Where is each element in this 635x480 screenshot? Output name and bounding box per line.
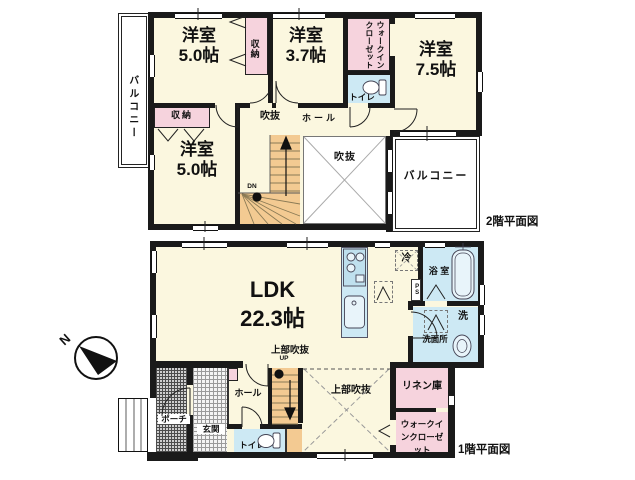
void-above-right-label: 上部吹抜	[316, 385, 386, 397]
wall-segment	[147, 452, 198, 461]
laundry-label: 洗	[452, 311, 474, 323]
fukinuke-hall-label: 吹抜	[250, 111, 290, 123]
ldk-label: LDK 22.3帖	[200, 276, 345, 333]
room-ne-label: 洋室 7.5帖	[396, 40, 476, 80]
room-n-label: 洋室 3.7帖	[268, 26, 344, 66]
wall-segment	[227, 424, 242, 429]
wall-segment	[298, 368, 303, 423]
floor2-stairs	[270, 135, 300, 193]
wall-segment	[148, 224, 392, 230]
window	[400, 131, 456, 137]
wall-segment	[368, 103, 392, 108]
floor1-stairs	[272, 368, 298, 429]
floor2-plan-label: 2階平面図	[486, 216, 556, 230]
wall-segment	[154, 103, 215, 108]
bathroom-label: 浴 室	[422, 266, 456, 277]
washer-space	[424, 310, 448, 333]
pipe-space-label: PS	[413, 281, 420, 299]
wall-segment	[408, 301, 413, 310]
closet-west-label: 収納	[158, 110, 206, 121]
genkan-step-line	[227, 368, 229, 424]
window	[479, 285, 485, 305]
wall-segment	[148, 12, 154, 230]
floor1-stairs-lower	[287, 429, 302, 452]
divider-line	[285, 429, 287, 452]
wall-segment	[390, 362, 455, 368]
wall-segment	[272, 103, 276, 108]
hall-1f-label: ホール	[230, 388, 266, 399]
window	[273, 13, 325, 19]
floor1-porch-floor	[156, 368, 187, 452]
cupboard-space	[374, 281, 393, 303]
walkin-closet-2f-label: ウォークインクローゼット	[352, 21, 386, 69]
wall-segment	[150, 361, 243, 368]
floor2-balcony-east	[392, 136, 480, 232]
wall-segment	[187, 368, 193, 385]
floor2-void	[303, 136, 386, 224]
compass-north-label: N	[53, 328, 77, 351]
floor1-genkan-floor	[193, 368, 227, 452]
room-nw-label: 洋室 5.0帖	[158, 26, 240, 66]
floor1-plan-label: 1階平面図	[458, 444, 528, 458]
window	[415, 13, 455, 19]
wall-segment	[347, 71, 390, 75]
window	[387, 192, 393, 214]
window	[151, 315, 157, 338]
washroom-label: 洗面所	[416, 334, 454, 344]
window	[193, 225, 218, 231]
window	[317, 453, 373, 459]
stairs-up-label: UP	[272, 355, 296, 363]
window	[151, 251, 157, 273]
wall-segment	[408, 336, 413, 362]
wall-segment	[390, 56, 395, 108]
porch-label: ポーチ	[158, 414, 190, 424]
window	[149, 55, 155, 77]
entrance-steps	[118, 398, 148, 452]
linen-closet-label: リネン庫	[396, 381, 448, 393]
window	[287, 242, 328, 248]
wall-segment	[260, 424, 302, 429]
wall-segment	[448, 362, 455, 458]
wall-segment	[390, 12, 395, 24]
wall-segment	[390, 130, 395, 136]
room-sw-label: 洋室 5.0帖	[157, 140, 237, 180]
wall-segment	[390, 445, 396, 458]
door-opening	[449, 396, 454, 405]
hall-2f-label: ホール	[298, 113, 342, 124]
window	[149, 155, 155, 170]
wall-segment	[396, 408, 436, 412]
window	[175, 13, 222, 19]
window	[425, 242, 445, 248]
window	[182, 242, 227, 248]
wall-segment	[268, 368, 272, 424]
walkin-closet-1f-label: ウォークインクローゼット	[397, 418, 447, 456]
toilet-1f-label: トイレ	[237, 440, 267, 450]
window	[477, 72, 483, 92]
window	[387, 150, 393, 172]
genkan-label: 玄関	[197, 424, 225, 434]
closet-top-label: 収納	[249, 29, 260, 69]
balcony-west-label: バルコニー	[126, 52, 138, 162]
stairs-dn-label: DN	[243, 183, 261, 191]
kitchen-counter	[341, 247, 368, 338]
floor2-stairs-winder	[238, 193, 300, 224]
wall-segment	[298, 103, 348, 108]
void-2f-label: 吹抜	[324, 152, 366, 164]
compass-icon	[75, 337, 117, 379]
refrigerator-label: 冷	[396, 253, 417, 265]
floor-plan: バルコニー 洋室 5.0帖 収納 洋室 3.7帖 ウォークインクローゼット トイ…	[0, 0, 635, 480]
window	[375, 242, 390, 248]
window	[479, 315, 485, 335]
toilet-2f-label: トイレ	[346, 92, 378, 102]
balcony-east-label: バルコニー	[399, 170, 473, 183]
